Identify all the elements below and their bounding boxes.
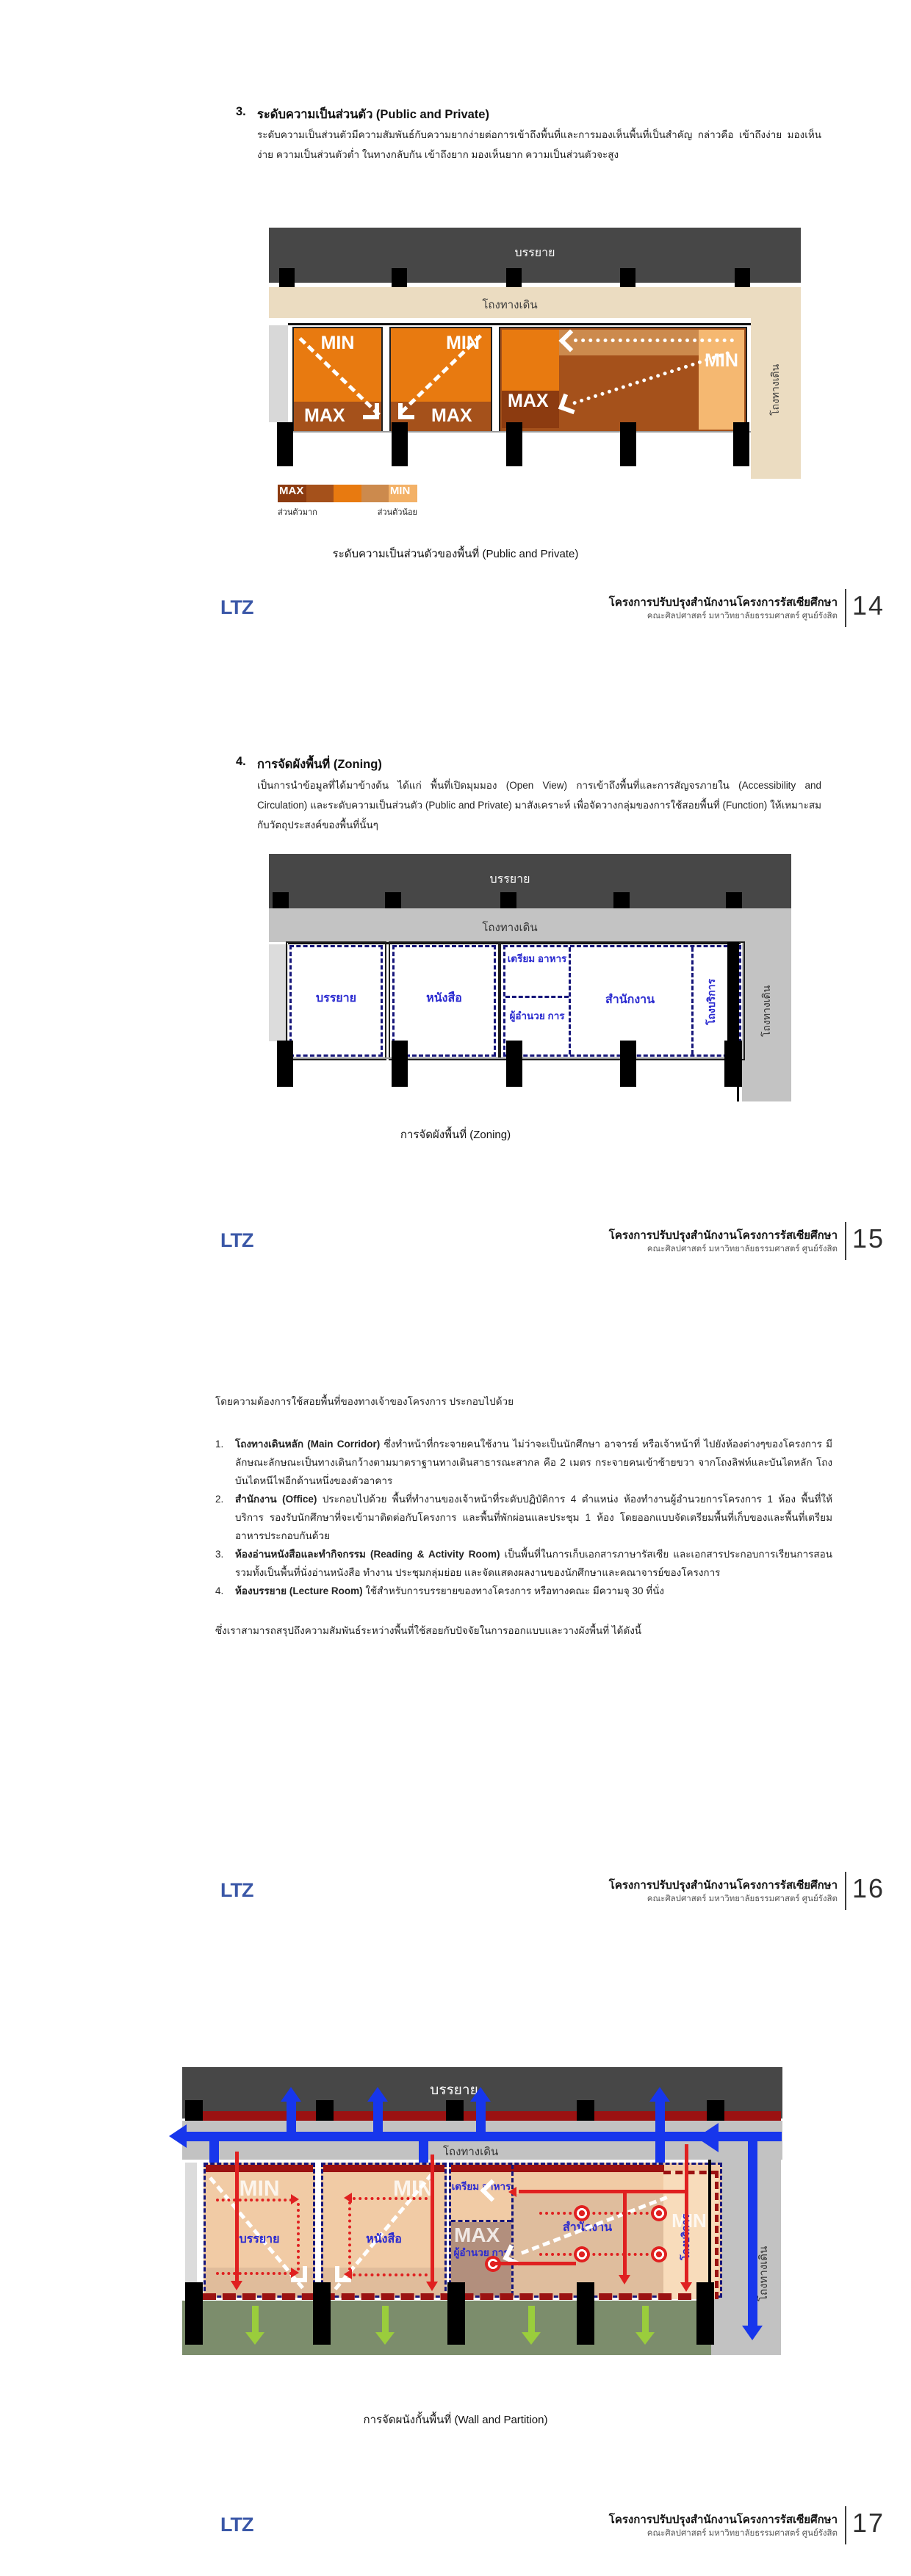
room-label: หนังสือ bbox=[395, 991, 494, 1006]
column bbox=[506, 422, 522, 466]
arrowhead-icon bbox=[398, 403, 414, 419]
caption-public-private: ระดับความเป็นส่วนตัวของพื้นที่ (Public a… bbox=[0, 545, 911, 562]
page-number: 17 bbox=[852, 2508, 885, 2539]
arrowhead-icon bbox=[619, 2275, 630, 2284]
arrowhead-icon bbox=[635, 2332, 655, 2345]
legend-private-high: ส่วนตัวมาก bbox=[278, 505, 317, 518]
green-arrow bbox=[252, 2306, 259, 2334]
max-label: MAX bbox=[508, 391, 549, 412]
privacy-room-3: MAX MIN bbox=[499, 327, 747, 433]
green-arrow bbox=[642, 2306, 649, 2334]
column bbox=[733, 422, 749, 466]
caption-wall-partition: การจัดผนังกั้นพื้นที่ (Wall and Partitio… bbox=[0, 2411, 911, 2428]
arrowhead-icon bbox=[367, 2087, 388, 2102]
side-corridor-label: โถงทางเดิน bbox=[758, 960, 774, 1063]
lecture-zone-label: บรรยาย bbox=[269, 244, 801, 262]
arrowhead-icon bbox=[169, 2124, 187, 2148]
section4-body: เป็นการนำข้อมูลที่ได้มาข้างต้น ได้แก่ พื… bbox=[257, 775, 821, 835]
column bbox=[735, 268, 750, 287]
circulation-arrow-up bbox=[287, 2100, 296, 2137]
column bbox=[696, 2282, 714, 2345]
door-symbol bbox=[651, 2246, 667, 2262]
footer: LTZ โครงการปรับปรุงสำนักงานโครงการรัสเซี… bbox=[0, 1873, 911, 1917]
page-number: 16 bbox=[852, 1873, 885, 1904]
list-item: 3. ห้องอ่านหนังสือและทำกิจกรรม (Reading … bbox=[215, 1545, 832, 1582]
column bbox=[577, 2100, 594, 2121]
list-item-text: สำนักงาน (Office) ประกอบไปด้วย พื้นที่ทำ… bbox=[235, 1490, 832, 1545]
sightline-arrow bbox=[574, 339, 734, 342]
footer-divider bbox=[845, 1222, 846, 1260]
list-item-body: ประกอบไปด้วย พื้นที่ทำงานของเจ้าหน้าที่ร… bbox=[235, 1494, 832, 1541]
side-corridor: โถงทางเดิน bbox=[742, 908, 791, 1101]
requirements-intro: โดยความต้องการใช้สอยพื้นที่ของทางเจ้าของ… bbox=[215, 1392, 832, 1411]
red-dimension-line bbox=[216, 2199, 292, 2201]
privacy-room-1: MIN MAX bbox=[292, 327, 383, 433]
column bbox=[726, 892, 742, 908]
arrowhead-icon bbox=[742, 2326, 763, 2340]
zoning-room-books: หนังสือ bbox=[392, 945, 496, 1057]
arrowhead-icon bbox=[231, 2281, 242, 2290]
arrowhead-icon bbox=[281, 2087, 301, 2102]
corridor-bar: โถงทางเดิน bbox=[269, 287, 801, 318]
door-symbol bbox=[574, 2205, 590, 2221]
column bbox=[316, 2100, 334, 2121]
column bbox=[313, 2282, 331, 2345]
footer-divider bbox=[845, 2506, 846, 2544]
column bbox=[185, 2282, 203, 2345]
red-dimension-line bbox=[353, 2197, 428, 2200]
arrowhead-icon bbox=[558, 394, 579, 414]
column bbox=[613, 892, 630, 908]
footer-project-title: โครงการปรับปรุงสำนักงานโครงการรัสเซียศึก… bbox=[514, 2511, 838, 2528]
list-item-text: ห้องอ่านหนังสือและทำกิจกรรม (Reading & A… bbox=[235, 1545, 832, 1582]
page-number: 14 bbox=[852, 590, 885, 621]
column bbox=[385, 892, 401, 908]
wall bbox=[708, 2160, 711, 2284]
wp-room-books: MIN หนังสือ bbox=[321, 2163, 447, 2298]
side-corridor-label: โถงทางเดิน bbox=[767, 339, 783, 441]
footer-project-title: โครงการปรับปรุงสำนักงานโครงการรัสเซียศึก… bbox=[514, 1226, 838, 1244]
column bbox=[392, 1041, 408, 1087]
legend-swatch bbox=[306, 485, 334, 502]
column bbox=[620, 268, 635, 287]
arrowhead-icon bbox=[344, 2269, 352, 2279]
circulation-arrow-up bbox=[655, 2100, 665, 2137]
circulation-arrow-up bbox=[373, 2100, 383, 2137]
list-item-title: ห้องอ่านหนังสือและทำกิจกรรม (Reading & A… bbox=[235, 1549, 500, 1560]
legend-max-swatch: MAX bbox=[278, 485, 306, 502]
room-label: หนังสือ bbox=[323, 2232, 444, 2247]
list-item-title: โถงทางเดินหลัก (Main Corridor) bbox=[235, 1439, 380, 1450]
list-item-text: ห้องบรรยาย (Lecture Room) ใช้สำหรับการบร… bbox=[235, 1582, 832, 1600]
footer: LTZ โครงการปรับปรุงสำนักงานโครงการรัสเซี… bbox=[0, 2508, 911, 2552]
column bbox=[577, 2282, 594, 2345]
zone-mid bbox=[559, 330, 699, 355]
diagram-zoning: บรรยาย โถงทางเดิน โถงทางเดิน บรรยาย หนัง… bbox=[269, 854, 801, 1104]
footer-project-title: โครงการปรับปรุงสำนักงานโครงการรัสเซียศึก… bbox=[514, 593, 838, 611]
section3-title: ระดับความเป็นส่วนตัว (Public and Private… bbox=[257, 105, 823, 124]
room-label: เตรียม อาหาร bbox=[505, 953, 569, 966]
privacy-legend: MAX MIN bbox=[278, 485, 417, 502]
column bbox=[273, 892, 289, 908]
list-item-text: โถงทางเดินหลัก (Main Corridor) ซึ่งทำหน้… bbox=[235, 1435, 832, 1490]
arrowhead-icon bbox=[680, 2282, 692, 2292]
red-arrow bbox=[623, 2190, 627, 2276]
red-dimension-line bbox=[353, 2273, 428, 2276]
column bbox=[392, 268, 407, 287]
footer-divider bbox=[845, 1872, 846, 1910]
green-arrow bbox=[528, 2306, 535, 2334]
list-item-number: 2. bbox=[215, 1490, 235, 1545]
arrowhead-icon bbox=[696, 2123, 719, 2152]
legend-private-low: ส่วนตัวน้อย bbox=[350, 505, 417, 518]
zoning-room-lecture: บรรยาย bbox=[289, 945, 383, 1057]
footer-project-subtitle: คณะศิลปศาสตร์ มหาวิทยาลัยธรรมศาสตร์ ศูนย… bbox=[514, 1242, 838, 1256]
red-dimension-line bbox=[539, 2212, 660, 2215]
column bbox=[500, 892, 516, 908]
lecture-zone-bar: บรรยาย bbox=[269, 228, 801, 283]
footer: LTZ โครงการปรับปรุงสำนักงานโครงการรัสเซี… bbox=[0, 1223, 911, 1267]
column bbox=[447, 2282, 465, 2345]
green-zone bbox=[182, 2301, 711, 2355]
footer-project-subtitle: คณะศิลปศาสตร์ มหาวิทยาลัยธรรมศาสตร์ ศูนย… bbox=[514, 609, 838, 623]
circulation-arrow-up bbox=[476, 2100, 486, 2137]
arrowhead-icon bbox=[426, 2282, 438, 2291]
column bbox=[446, 2100, 464, 2121]
list-item-body: ใช้สำหรับการบรรยายของทางโครงการ หรือทางค… bbox=[365, 1585, 664, 1596]
side-corridor-label: โถงทางเดิน bbox=[755, 2218, 773, 2329]
door-symbol bbox=[651, 2205, 667, 2221]
room-label: โถงบริการ bbox=[705, 966, 719, 1037]
red-wall-strip bbox=[451, 2165, 664, 2172]
requirements-closing: ซึ่งเราสามารถสรุปถึงความสัมพันธ์ระหว่างพ… bbox=[215, 1621, 832, 1640]
max-label: MAX bbox=[431, 405, 472, 427]
wall-stub bbox=[185, 2163, 197, 2284]
side-corridor: โถงทางเดิน bbox=[751, 287, 801, 479]
arrowhead-icon bbox=[508, 2187, 516, 2197]
diagram-public-private: บรรยาย โถงทางเดิน โถงทางเดิน MIN MAX MIN bbox=[269, 228, 801, 518]
red-arrow bbox=[431, 2154, 434, 2283]
room-label: สำนักงาน bbox=[569, 993, 691, 1007]
list-item-title: สำนักงาน (Office) bbox=[235, 1494, 317, 1505]
red-line bbox=[580, 2190, 687, 2193]
red-arrow bbox=[519, 2190, 580, 2193]
list-item: 1. โถงทางเดินหลัก (Main Corridor) ซึ่งทำ… bbox=[215, 1435, 832, 1490]
arrowhead-icon bbox=[375, 2332, 395, 2345]
ltz-logo: LTZ bbox=[220, 1229, 253, 1252]
legend-swatch bbox=[361, 485, 389, 502]
list-item-number: 4. bbox=[215, 1582, 235, 1600]
partition-line bbox=[505, 996, 569, 998]
red-dimension-line bbox=[539, 2253, 660, 2256]
footer-project-title: โครงการปรับปรุงสำนักงานโครงการรัสเซียศึก… bbox=[514, 1876, 838, 1894]
section3-body: ระดับความเป็นส่วนตัวมีความสัมพันธ์กับควา… bbox=[257, 125, 821, 164]
ltz-logo: LTZ bbox=[220, 2514, 253, 2536]
lecture-zone-bar: บรรยาย bbox=[269, 854, 791, 908]
arrowhead-icon bbox=[363, 403, 379, 419]
list-item-number: 1. bbox=[215, 1435, 235, 1490]
column bbox=[724, 1041, 742, 1087]
wall-stub bbox=[269, 325, 288, 422]
room-label: บรรยาย bbox=[292, 991, 381, 1006]
green-arrow bbox=[382, 2306, 389, 2334]
footer-project-subtitle: คณะศิลปศาสตร์ มหาวิทยาลัยธรรมศาสตร์ ศูนย… bbox=[514, 2527, 838, 2540]
column bbox=[620, 1041, 636, 1087]
red-dimension-line bbox=[297, 2203, 300, 2271]
arrowhead-icon bbox=[522, 2332, 541, 2345]
lecture-zone-label: บรรยาย bbox=[269, 870, 751, 889]
column bbox=[506, 268, 522, 287]
ghost-max: MAX bbox=[454, 2224, 500, 2247]
zone-orange bbox=[502, 330, 559, 391]
wall-line bbox=[288, 323, 751, 325]
ltz-logo: LTZ bbox=[220, 596, 253, 619]
corridor-label: โถงทางเดิน bbox=[269, 919, 751, 936]
room-label: ผู้อำนวย การ bbox=[451, 2247, 511, 2260]
column bbox=[707, 2100, 724, 2121]
red-line bbox=[495, 2262, 576, 2265]
wp-room-group: เตรียม อาหาร MAX ผู้อำนวย การ สำนักงาน M… bbox=[449, 2163, 722, 2298]
requirements-list: 1. โถงทางเดินหลัก (Main Corridor) ซึ่งทำ… bbox=[215, 1435, 832, 1600]
arrowhead-icon bbox=[649, 2087, 670, 2102]
red-arrow bbox=[685, 2144, 688, 2284]
document-page: 3. ระดับความเป็นส่วนตัว (Public and Priv… bbox=[0, 0, 911, 2576]
room-label: ผู้อำนวย การ bbox=[505, 1010, 569, 1023]
list-item: 2. สำนักงาน (Office) ประกอบไปด้วย พื้นที… bbox=[215, 1490, 832, 1545]
partition-line bbox=[691, 947, 694, 1054]
column bbox=[185, 2100, 203, 2121]
column bbox=[277, 1041, 293, 1087]
section4-title: การจัดผังพื้นที่ (Zoning) bbox=[257, 755, 823, 774]
red-dimension-line bbox=[216, 2272, 292, 2275]
diagram-wall-partition: บรรยาย โถงทางเดิน โถงทางเดิน bbox=[182, 2067, 796, 2361]
red-wall-strip bbox=[323, 2165, 444, 2172]
corridor-label: โถงทางเดิน bbox=[269, 296, 751, 314]
circulation-arrow-side bbox=[748, 2137, 757, 2326]
section4-number: 4. bbox=[236, 755, 246, 769]
corridor-label: โถงทางเดิน bbox=[443, 2143, 498, 2160]
red-dimension-line bbox=[348, 2201, 351, 2271]
column bbox=[620, 422, 636, 466]
legend-min-swatch: MIN bbox=[389, 485, 417, 502]
privacy-room-2: MIN MAX bbox=[389, 327, 492, 433]
zone-min: MIN bbox=[699, 330, 744, 430]
ltz-logo: LTZ bbox=[220, 1879, 253, 1902]
max-label: MAX bbox=[304, 405, 345, 427]
footer-project-subtitle: คณะศิลปศาสตร์ มหาวิทยาลัยธรรมศาสตร์ ศูนย… bbox=[514, 1892, 838, 1906]
column bbox=[506, 1041, 522, 1087]
door-symbol bbox=[574, 2246, 590, 2262]
column bbox=[392, 422, 408, 466]
list-item: 4. ห้องบรรยาย (Lecture Room) ใช้สำหรับกา… bbox=[215, 1582, 832, 1600]
legend-swatch bbox=[334, 485, 361, 502]
section3-number: 3. bbox=[236, 105, 246, 119]
red-wall-strip bbox=[206, 2165, 313, 2172]
arrowhead-icon bbox=[245, 2332, 264, 2345]
wp-room-lecture: MIN บรรยาย bbox=[204, 2163, 315, 2298]
caption-zoning: การจัดผังพื้นที่ (Zoning) bbox=[0, 1126, 911, 1143]
footer: LTZ โครงการปรับปรุงสำนักงานโครงการรัสเซี… bbox=[0, 590, 911, 634]
list-item-number: 3. bbox=[215, 1545, 235, 1582]
column bbox=[277, 422, 293, 466]
corridor-bar: โถงทางเดิน bbox=[269, 908, 791, 942]
red-arrow bbox=[235, 2152, 239, 2282]
wall-stub bbox=[269, 944, 288, 1041]
page-number: 15 bbox=[852, 1223, 885, 1254]
column bbox=[279, 268, 295, 287]
footer-divider bbox=[845, 589, 846, 627]
wall-line bbox=[288, 942, 741, 944]
list-item-title: ห้องบรรยาย (Lecture Room) bbox=[235, 1585, 363, 1596]
arrowhead-icon bbox=[470, 2087, 491, 2102]
